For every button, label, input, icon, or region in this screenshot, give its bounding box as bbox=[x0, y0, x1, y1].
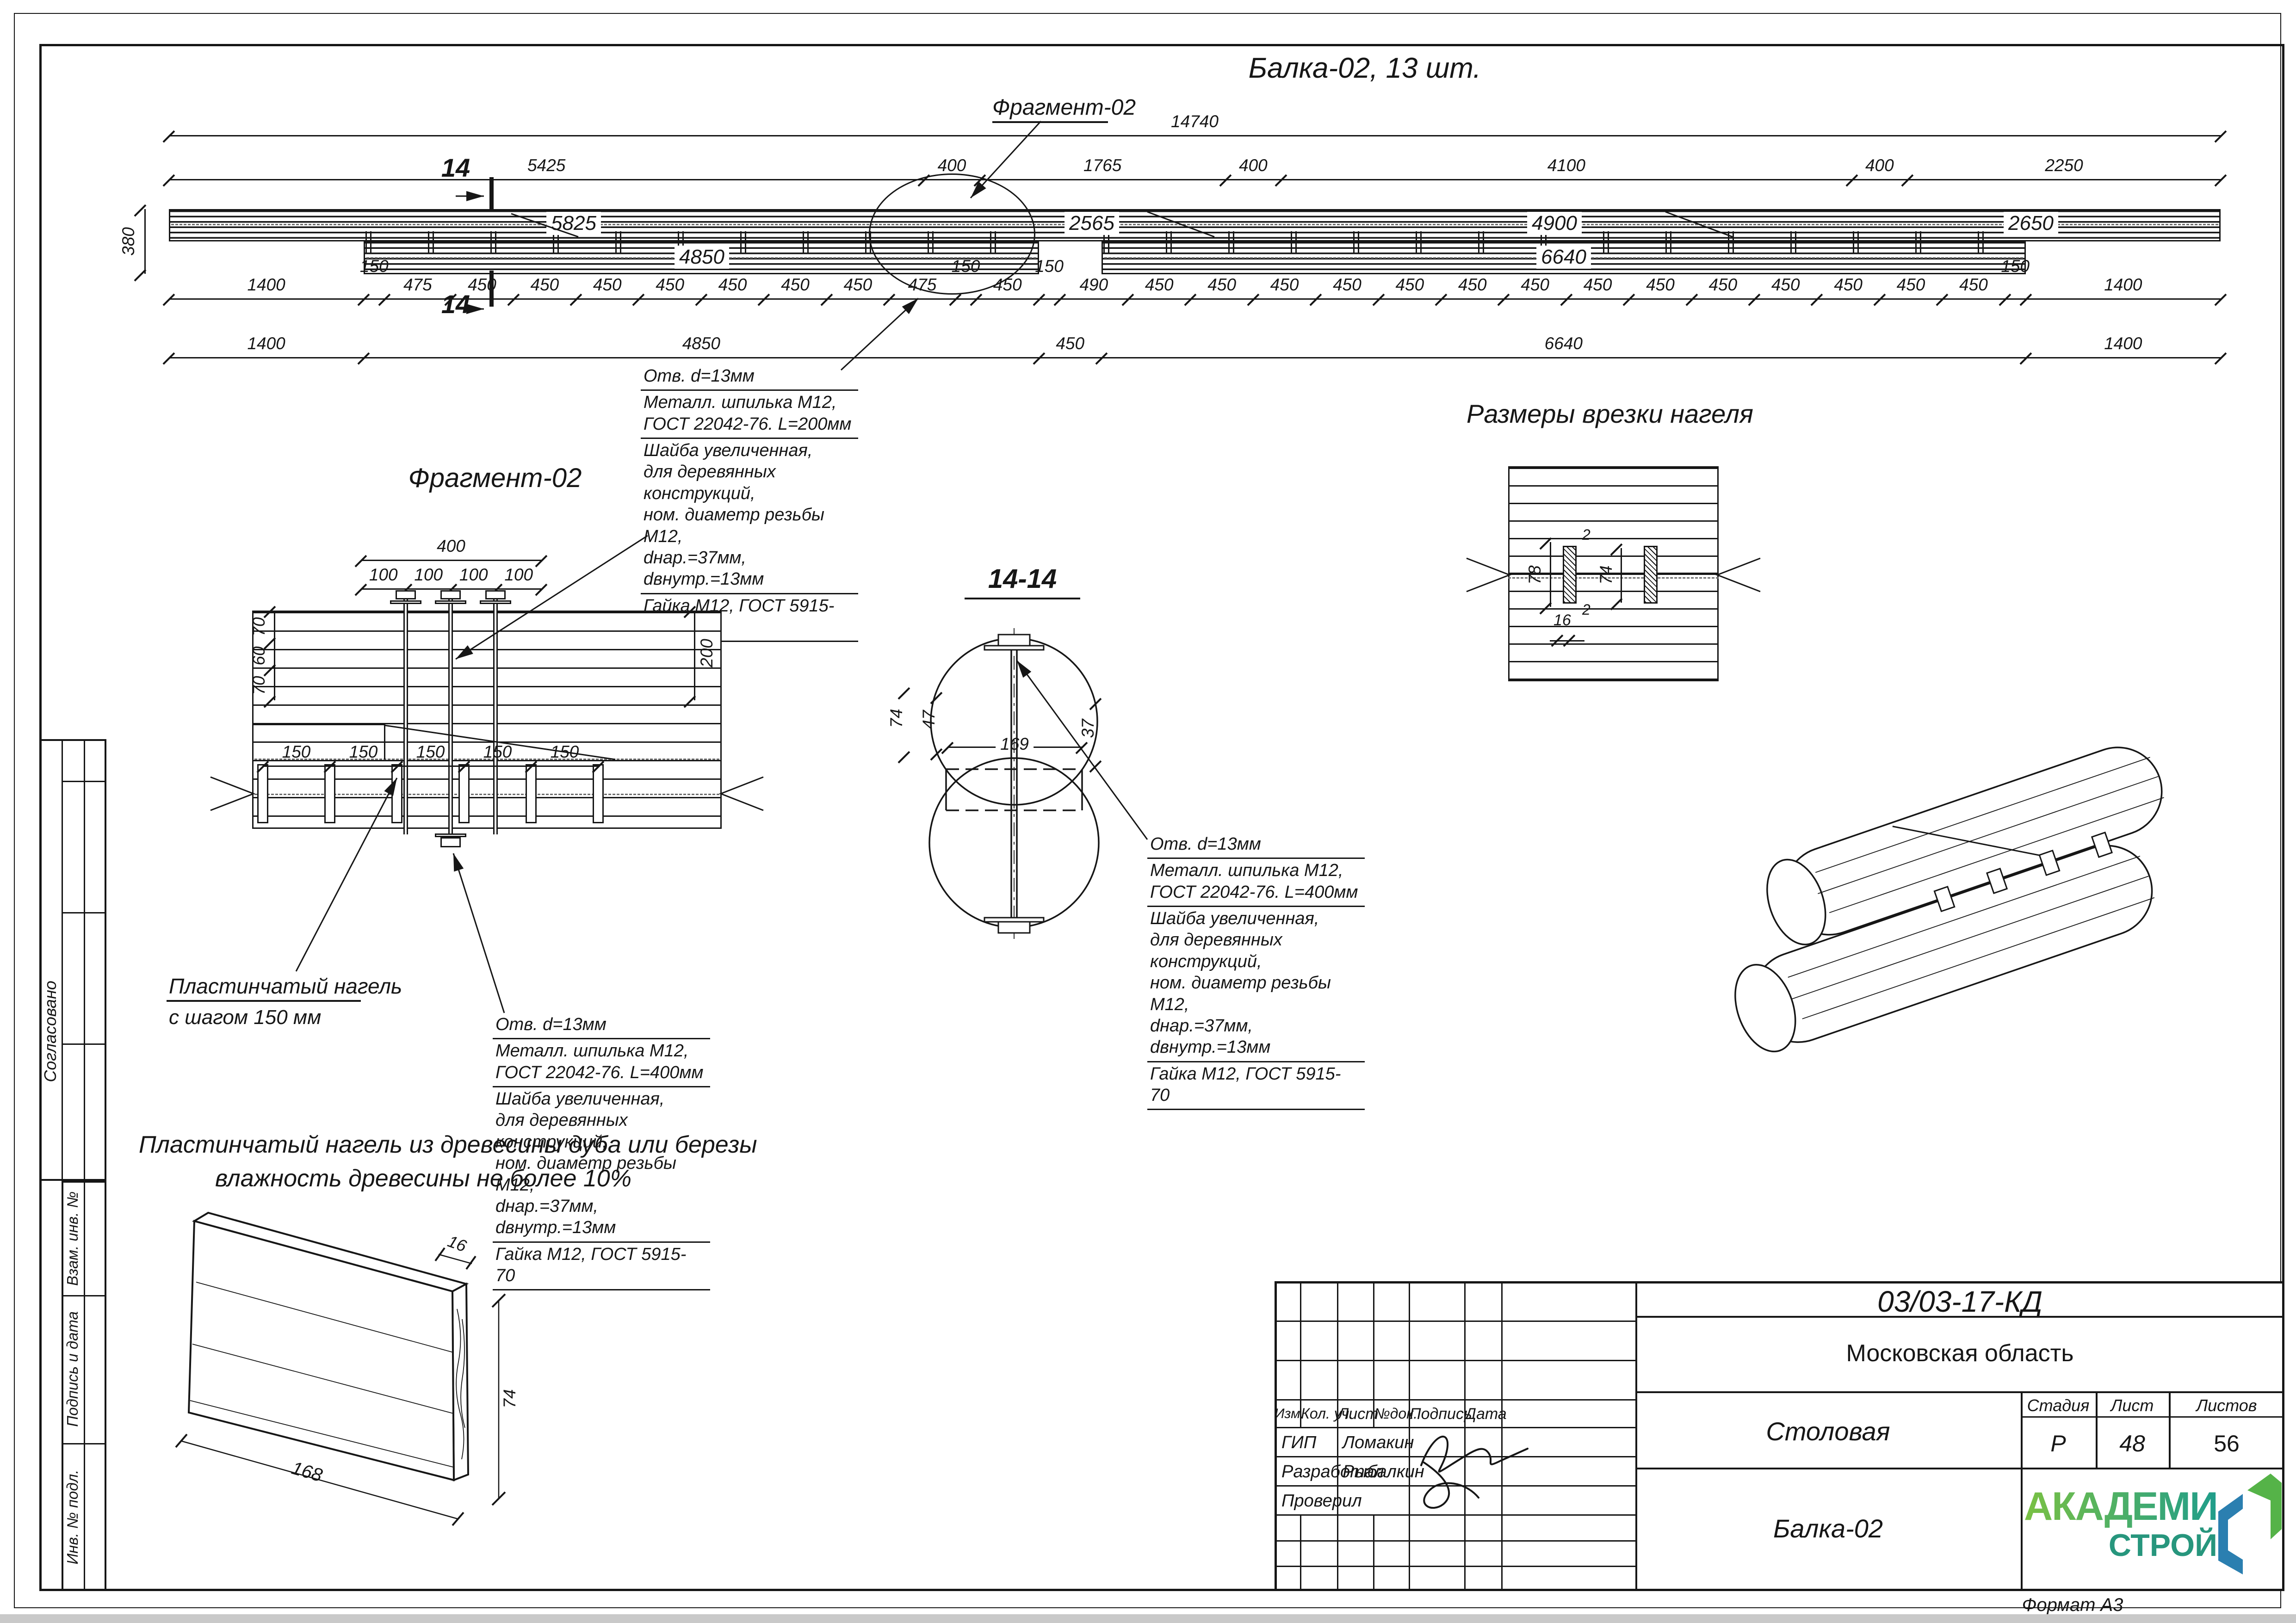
dim-label-200: 200 bbox=[697, 639, 717, 667]
dim-label: 1400 bbox=[2104, 334, 2142, 353]
section-mark-top: 14 bbox=[430, 153, 481, 183]
tb-role-gip: ГИП bbox=[1281, 1433, 1316, 1453]
dim-label: 150 bbox=[483, 742, 512, 762]
dim-label: 1400 bbox=[2104, 275, 2142, 295]
nut bbox=[440, 590, 461, 599]
beam-label: 6640 bbox=[1536, 246, 1591, 269]
section-view-title: 14-14 bbox=[953, 563, 1092, 594]
tb-line bbox=[1373, 1514, 1374, 1591]
callout-line: Металл. шпилька М12, bbox=[495, 1040, 706, 1061]
logo-text-academik: АКАДЕМИК bbox=[2024, 1484, 2218, 1530]
fragment-label-underline bbox=[992, 121, 1108, 123]
stamp-approved-label: Согласовано bbox=[41, 981, 60, 1082]
beam-label: 5825 bbox=[546, 212, 601, 235]
tb-doc-number: 03/03-17-КД bbox=[1635, 1284, 2284, 1319]
callout-line: для деревянных конструкций, bbox=[1150, 929, 1360, 972]
stamp-grid-line bbox=[62, 1443, 106, 1444]
dim-label: 475 bbox=[403, 275, 432, 295]
tb-line bbox=[1300, 1514, 1301, 1591]
dim-label: 400 bbox=[938, 156, 966, 175]
dim-label: 450 bbox=[1708, 275, 1737, 295]
dim-label: 450 bbox=[1897, 275, 1925, 295]
fragment-step-line-v bbox=[384, 724, 385, 759]
tb-line bbox=[1275, 1514, 1635, 1516]
dim-label: 490 bbox=[1079, 275, 1108, 295]
dim-label: 150 bbox=[282, 742, 311, 762]
dim-label: 450 bbox=[718, 275, 747, 295]
section-title-underline bbox=[965, 598, 1080, 599]
beam-label: 2565 bbox=[1064, 212, 1119, 235]
dim-label: 450 bbox=[1145, 275, 1174, 295]
dim-label: 450 bbox=[530, 275, 559, 295]
callout-line: Гайка М12, ГОСТ 5915-70 bbox=[495, 1244, 706, 1287]
tb-header-podpis: Подпись bbox=[1410, 1405, 1464, 1423]
tb-sheets-label: Листов bbox=[2169, 1396, 2284, 1415]
dim-label: 450 bbox=[1056, 334, 1084, 353]
fragment-view-title: Фрагмент-02 bbox=[402, 463, 588, 494]
stamp-grid-line bbox=[62, 1043, 106, 1045]
callout-line: ГОСТ 22042-76. L=200мм bbox=[644, 413, 854, 435]
dim-label-2: 2 bbox=[1582, 601, 1590, 618]
stud bbox=[403, 598, 408, 834]
dim-label: 4850 bbox=[682, 334, 720, 353]
plate-dowel bbox=[526, 764, 537, 823]
callout-line: ном. диаметр резьбы М12, bbox=[1150, 972, 1360, 1015]
stamp-grid-line bbox=[62, 1295, 106, 1296]
stud-callout-l400-section: Отв. d=13мм Металл. шпилька М12,ГОСТ 220… bbox=[1147, 833, 1365, 1110]
dim-label: 150 bbox=[416, 742, 445, 762]
fragment-step-line-h bbox=[252, 724, 384, 725]
dim-row-100: 100100100100 bbox=[361, 588, 541, 590]
main-view-title: Балка-02, 13 шт. bbox=[1133, 52, 1596, 85]
tb-line bbox=[2021, 1391, 2023, 1591]
top-beam-centerline bbox=[171, 224, 2218, 225]
dim-label: 450 bbox=[1521, 275, 1549, 295]
plank-note-line2: влажность древесины не более 10% bbox=[139, 1165, 708, 1192]
dim-label: 150 bbox=[360, 257, 389, 276]
tb-line bbox=[1635, 1468, 2284, 1469]
notch-dowel-2 bbox=[1644, 546, 1658, 604]
callout-line: Шайба увеличенная, bbox=[1150, 908, 1360, 929]
dim-label: 450 bbox=[656, 275, 684, 295]
notch-view-title: Размеры врезки нагеля bbox=[1448, 399, 1772, 429]
dim-row-overall: 14740 bbox=[169, 135, 2221, 136]
callout-line: Шайба увеличенная, bbox=[644, 440, 854, 461]
callout-line: dнар.=37мм, dвнутр.=13мм bbox=[495, 1196, 706, 1239]
dim-label: 400 bbox=[1865, 156, 1894, 175]
dim-row-150: 150150150150150 bbox=[263, 765, 598, 767]
tb-line bbox=[1464, 1281, 1466, 1591]
dim-label: 1765 bbox=[1083, 156, 1121, 175]
fragment-callout-label: Фрагмент-02 bbox=[992, 95, 1136, 120]
dim-label: 6640 bbox=[1545, 334, 1583, 353]
tb-stage-value: Р bbox=[2021, 1430, 2096, 1457]
dim-label-74: 74 bbox=[1597, 565, 1616, 584]
callout-line: ном. диаметр резьбы М12, bbox=[644, 504, 854, 547]
dim-label: 2250 bbox=[2045, 156, 2083, 175]
dim-label: 450 bbox=[781, 275, 810, 295]
dim-label-47: 47 bbox=[919, 710, 939, 729]
dim-row-400: 400 bbox=[361, 560, 541, 561]
tb-drawing-name: Балка-02 bbox=[1635, 1513, 2021, 1543]
stamp-inv-label: Инв. № подл. bbox=[64, 1470, 81, 1565]
tb-line bbox=[1275, 1360, 1635, 1361]
dim-row-bottom: 1400485045066401400 bbox=[169, 357, 2221, 358]
dim-label: 400 bbox=[1239, 156, 1268, 175]
tb-line bbox=[2021, 1416, 2284, 1418]
tb-line bbox=[1275, 1456, 1635, 1457]
dim-label: 1400 bbox=[247, 334, 285, 353]
nagel-note-line2: с шагом 150 мм bbox=[169, 1006, 321, 1029]
tb-line bbox=[1275, 1566, 1635, 1567]
plate-dowel bbox=[593, 764, 604, 823]
tb-role-proveril: Проверил bbox=[1281, 1491, 1362, 1511]
tb-line bbox=[1635, 1391, 2284, 1393]
plate-dowel bbox=[257, 764, 268, 823]
dim-label: 100 bbox=[414, 565, 443, 585]
stud bbox=[493, 598, 498, 834]
tb-header-doc: №док. bbox=[1374, 1405, 1409, 1422]
dim-label-70: 70 bbox=[249, 617, 269, 636]
tb-line bbox=[1275, 1399, 1635, 1401]
notch-dowel-1 bbox=[1563, 546, 1577, 604]
beam-label: 4900 bbox=[1527, 212, 1582, 235]
dim-line bbox=[694, 611, 695, 700]
nut bbox=[485, 590, 506, 599]
dim-label-380: 380 bbox=[119, 227, 138, 256]
dim-label: 150 bbox=[349, 742, 378, 762]
dim-label-60: 60 bbox=[249, 646, 269, 665]
callout-line: для деревянных конструкций, bbox=[644, 461, 854, 504]
plate-dowel bbox=[324, 764, 335, 823]
dim-label: 450 bbox=[1646, 275, 1675, 295]
callout-line: dнар.=37мм, dвнутр.=13мм bbox=[1150, 1015, 1360, 1058]
section-cut-line-top bbox=[489, 177, 494, 210]
dim-label: 100 bbox=[369, 565, 398, 585]
stud-callout-l200: Отв. d=13мм Металл. шпилька М12,ГОСТ 220… bbox=[641, 364, 858, 642]
stamp-grid-line bbox=[62, 781, 106, 782]
dim-label: 450 bbox=[1771, 275, 1800, 295]
dim-label: 450 bbox=[1584, 275, 1612, 295]
callout-line: ГОСТ 22042-76. L=400мм bbox=[1150, 882, 1360, 903]
dim-label-74: 74 bbox=[500, 1389, 520, 1408]
tb-stage-label: Стадия bbox=[2021, 1396, 2096, 1415]
nagel-note-underline bbox=[167, 1000, 361, 1002]
washer bbox=[480, 600, 511, 604]
dim-line bbox=[1621, 548, 1622, 603]
nut bbox=[440, 837, 461, 847]
dim-line-380 bbox=[144, 209, 146, 274]
dim-label-70: 70 bbox=[249, 676, 269, 695]
tb-line bbox=[1275, 1321, 1635, 1322]
tb-line bbox=[1501, 1281, 1503, 1591]
callout-line: Отв. d=13мм bbox=[1150, 833, 1360, 855]
tb-line bbox=[1337, 1281, 1338, 1591]
callout-line: Гайка М12, ГОСТ 5915-70 bbox=[1150, 1063, 1360, 1106]
tb-header-izm: Изм. bbox=[1275, 1406, 1301, 1422]
dim-label-78: 78 bbox=[1525, 565, 1545, 584]
nagel-note-line1: Пластинчатый нагель bbox=[169, 974, 402, 999]
plank-note-line1: Пластинчатый нагель из древесины дуба ил… bbox=[139, 1131, 726, 1159]
tb-name-lomakin: Ломакин bbox=[1343, 1433, 1414, 1453]
dim-label: 100 bbox=[504, 565, 533, 585]
callout-line: Отв. d=13мм bbox=[495, 1014, 706, 1035]
format-label: Формат А3 bbox=[1980, 1595, 2165, 1614]
dim-label: 450 bbox=[1959, 275, 1988, 295]
tb-sheet-label: Лист bbox=[2096, 1396, 2169, 1415]
dim-label: 5425 bbox=[527, 156, 565, 175]
dim-label-16: 16 bbox=[1553, 611, 1571, 629]
dim-label: 450 bbox=[1395, 275, 1424, 295]
stamp-grid-line bbox=[62, 912, 106, 913]
dim-line bbox=[274, 611, 275, 700]
dim-label: 4100 bbox=[1547, 156, 1585, 175]
dim-label: 450 bbox=[468, 275, 496, 295]
tb-region: Московская область bbox=[1635, 1339, 2284, 1367]
washer bbox=[435, 833, 466, 837]
dim-label: 14740 bbox=[1171, 112, 1219, 131]
callout-line: Металл. шпилька М12, bbox=[1150, 860, 1360, 881]
dim-label: 1400 bbox=[247, 275, 285, 295]
dim-label: 450 bbox=[1333, 275, 1362, 295]
dim-label: 450 bbox=[1834, 275, 1863, 295]
callout-line: Шайба увеличенная, bbox=[495, 1088, 706, 1110]
side-stamp-approved-box bbox=[39, 739, 106, 1181]
dim-label: 169 bbox=[996, 734, 1034, 754]
plate-dowel bbox=[458, 764, 470, 823]
beam-label: 2650 bbox=[2004, 212, 2058, 235]
dim-label: 400 bbox=[437, 537, 465, 556]
washer bbox=[390, 600, 421, 604]
tb-object-name: Столовая bbox=[1635, 1416, 2021, 1446]
callout-line: Отв. d=13мм bbox=[644, 365, 854, 387]
dim-label: 100 bbox=[459, 565, 488, 585]
fragment-beams bbox=[252, 611, 722, 829]
stamp-grid-line bbox=[62, 739, 63, 1181]
washer bbox=[435, 600, 466, 604]
tb-line bbox=[1275, 1540, 1635, 1542]
drawing-sheet: Балка-02, 13 шт. 14740 54254001765400410… bbox=[0, 0, 2296, 1614]
tb-header-koluch: Кол. уч. bbox=[1301, 1405, 1337, 1422]
fragment-circle bbox=[869, 173, 1035, 295]
nut bbox=[396, 590, 416, 599]
dim-line bbox=[1550, 542, 1551, 607]
callout-line: ГОСТ 22042-76. L=400мм bbox=[495, 1062, 706, 1083]
dim-label: 450 bbox=[1207, 275, 1236, 295]
tb-sheet-value: 48 bbox=[2096, 1430, 2169, 1457]
dim-label: 150 bbox=[551, 742, 579, 762]
plate-dowel bbox=[391, 764, 402, 823]
dim-label-74: 74 bbox=[887, 709, 906, 728]
stamp-subst-label: Взам. инв. № bbox=[64, 1191, 81, 1286]
tb-line bbox=[1275, 1427, 1635, 1428]
dim-row-169: 169 bbox=[947, 747, 1082, 748]
beam-label: 4850 bbox=[675, 246, 729, 269]
tb-header-list: Лист bbox=[1338, 1405, 1373, 1423]
dim-label: 150 bbox=[2001, 257, 2030, 276]
tb-line bbox=[1275, 1485, 1635, 1487]
tb-header-data: Дата bbox=[1465, 1405, 1501, 1423]
dim-label-37: 37 bbox=[1078, 719, 1098, 738]
dim-label: 450 bbox=[1270, 275, 1299, 295]
callout-line: Металл. шпилька М12, bbox=[644, 392, 854, 413]
dim-label: 450 bbox=[593, 275, 622, 295]
dim-label: 150 bbox=[1035, 257, 1064, 276]
callout-line: dнар.=37мм, dвнутр.=13мм bbox=[644, 547, 854, 590]
dim-row-fine: 1400150475450450450450450450450475150450… bbox=[169, 298, 2221, 300]
logo-text-stroy: СТРОЙ bbox=[2024, 1527, 2217, 1563]
dim-label: 450 bbox=[1458, 275, 1487, 295]
stamp-grid-line bbox=[84, 739, 85, 1181]
stud bbox=[448, 598, 453, 834]
tb-name-rybalkin: Рыбалкин bbox=[1343, 1462, 1424, 1482]
stamp-grid-line bbox=[84, 1181, 85, 1591]
stamp-signdate-label: Подпись и дата bbox=[64, 1311, 81, 1427]
tb-sheets-value: 56 bbox=[2169, 1430, 2284, 1457]
dim-label: 450 bbox=[843, 275, 872, 295]
dim-label-2: 2 bbox=[1582, 526, 1590, 543]
